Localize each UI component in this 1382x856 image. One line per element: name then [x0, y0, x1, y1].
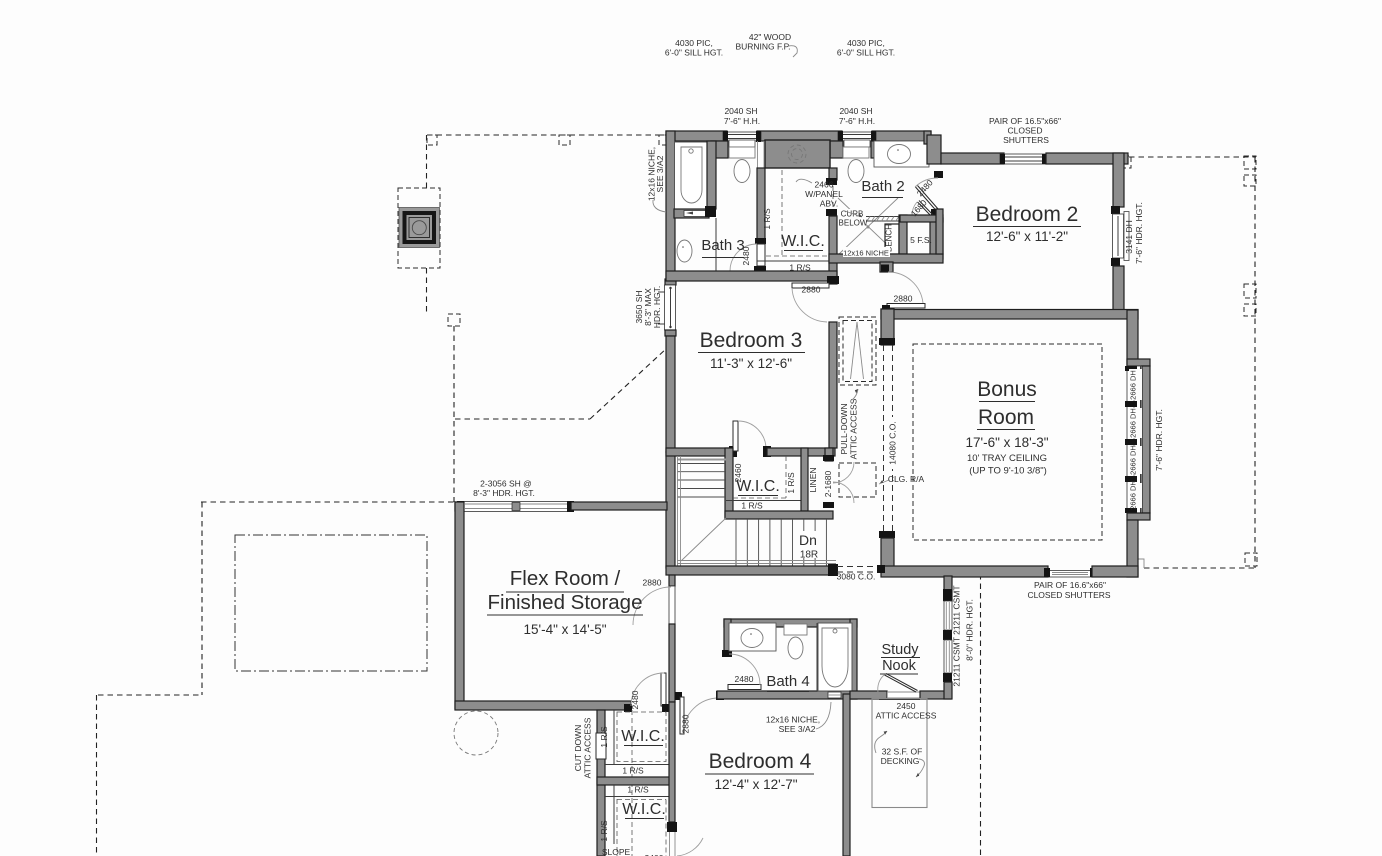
svg-text:2040 SH: 2040 SH — [839, 106, 872, 116]
svg-text:Dn: Dn — [799, 532, 817, 548]
svg-text:SHUTTERS: SHUTTERS — [1003, 135, 1049, 145]
svg-text:PULL-DOWN: PULL-DOWN — [839, 403, 849, 454]
svg-text:CLOSED: CLOSED — [1008, 126, 1043, 136]
svg-text:6'-0" SILL HGT.: 6'-0" SILL HGT. — [837, 48, 895, 58]
svg-text:12x16 NICHE: 12x16 NICHE — [843, 249, 889, 258]
svg-text:2666 DH: 2666 DH — [1129, 408, 1138, 438]
svg-text:7'-6" HDR. HGT.: 7'-6" HDR. HGT. — [1134, 202, 1144, 264]
svg-text:7'-6" HDR. HGT.: 7'-6" HDR. HGT. — [1154, 409, 1164, 471]
svg-text:ATTIC ACCESS: ATTIC ACCESS — [583, 717, 593, 778]
svg-text:8'-0" HDR. HGT.: 8'-0" HDR. HGT. — [965, 599, 975, 661]
svg-text:2880: 2880 — [802, 285, 821, 295]
svg-text:SEE 3/A2: SEE 3/A2 — [655, 155, 665, 192]
svg-text:BELOW: BELOW — [839, 219, 868, 228]
svg-text:W/PANEL: W/PANEL — [805, 189, 843, 199]
svg-text:2880: 2880 — [894, 294, 913, 304]
svg-text:W.I.C.: W.I.C. — [781, 233, 825, 250]
svg-text:Nook: Nook — [882, 658, 917, 674]
svg-text:32 S.F. OF: 32 S.F. OF — [882, 747, 923, 757]
svg-text:CURB: CURB — [841, 210, 864, 219]
svg-text:ABV.: ABV. — [820, 199, 839, 209]
svg-text:1 R/S: 1 R/S — [741, 501, 763, 511]
svg-text:3141 DH: 3141 DH — [1124, 220, 1134, 254]
svg-text:Bonus: Bonus — [977, 378, 1037, 401]
svg-text:Flex Room /: Flex Room / — [510, 567, 621, 590]
svg-text:2-1680: 2-1680 — [823, 470, 833, 497]
svg-text:1 R/S: 1 R/S — [599, 726, 609, 748]
svg-text:2-3056 SH @: 2-3056 SH @ — [480, 479, 532, 489]
svg-text:Bedroom 3: Bedroom 3 — [700, 329, 803, 352]
svg-text:12x16 NICHE,: 12x16 NICHE, — [766, 715, 820, 725]
svg-text:Bath 3: Bath 3 — [701, 237, 744, 254]
svg-text:DECKING: DECKING — [881, 756, 920, 766]
svg-text:Study: Study — [881, 642, 919, 658]
svg-text:Bedroom 2: Bedroom 2 — [976, 203, 1079, 226]
svg-text:14080 C.O.: 14080 C.O. — [888, 421, 898, 464]
svg-text:CLOSED SHUTTERS: CLOSED SHUTTERS — [1027, 590, 1110, 600]
svg-text:1 R/S: 1 R/S — [627, 785, 649, 795]
svg-text:ATTIC ACCESS: ATTIC ACCESS — [849, 398, 859, 459]
svg-text:2666 DH: 2666 DH — [1129, 445, 1138, 475]
svg-text:ATTIC ACCESS: ATTIC ACCESS — [876, 711, 937, 721]
svg-text:7'-6" H.H.: 7'-6" H.H. — [724, 116, 760, 126]
svg-text:SLOPE: SLOPE — [602, 847, 631, 856]
svg-text:2480: 2480 — [735, 674, 754, 684]
svg-text:Bedroom 4: Bedroom 4 — [709, 750, 812, 773]
svg-text:2480: 2480 — [741, 246, 751, 265]
svg-text:1 R/S: 1 R/S — [762, 208, 772, 230]
svg-text:Bath 4: Bath 4 — [766, 673, 809, 690]
svg-text:12'-4" x 12'-7": 12'-4" x 12'-7" — [714, 777, 797, 792]
svg-text:(UP TO 9'-10 3/8"): (UP TO 9'-10 3/8") — [969, 466, 1047, 477]
svg-text:Finished Storage: Finished Storage — [488, 591, 643, 614]
svg-text:2880: 2880 — [643, 578, 662, 588]
svg-text:42" WOOD: 42" WOOD — [749, 32, 791, 42]
svg-text:2040 SH: 2040 SH — [724, 106, 757, 116]
svg-text:W.I.C.: W.I.C. — [736, 478, 780, 495]
svg-text:3080 C.O.: 3080 C.O. — [837, 572, 876, 582]
svg-text:SEE 3/A2: SEE 3/A2 — [779, 724, 816, 734]
svg-text:15'-4" x 14'-5": 15'-4" x 14'-5" — [523, 622, 606, 637]
svg-text:W.I.C.: W.I.C. — [622, 801, 666, 818]
svg-text:LINEN: LINEN — [808, 467, 818, 492]
svg-text:4030 PIC,: 4030 PIC, — [675, 38, 713, 48]
svg-text:HDR. HGT.: HDR. HGT. — [652, 286, 662, 329]
svg-text:12'-6" x 11'-2": 12'-6" x 11'-2" — [986, 229, 1068, 244]
svg-text:2880: 2880 — [681, 714, 691, 733]
svg-text:CUT DOWN: CUT DOWN — [573, 725, 583, 772]
svg-text:Bath 2: Bath 2 — [861, 178, 904, 195]
svg-text:5 F.S.: 5 F.S. — [910, 235, 932, 245]
svg-text:17'-6" x 18'-3": 17'-6" x 18'-3" — [965, 435, 1048, 450]
svg-text:1 R/S: 1 R/S — [789, 263, 811, 273]
svg-text:2480: 2480 — [630, 690, 640, 709]
svg-text:18R: 18R — [800, 550, 818, 561]
svg-text:2450: 2450 — [897, 701, 916, 711]
svg-text:1 R/S: 1 R/S — [622, 766, 644, 776]
svg-text:6'-0" SILL HGT.: 6'-0" SILL HGT. — [665, 48, 723, 58]
svg-text:8'-3" HDR. HGT.: 8'-3" HDR. HGT. — [473, 488, 535, 498]
svg-text:PAIR OF 16.5"x66": PAIR OF 16.5"x66" — [989, 116, 1061, 126]
svg-text:CLG. R/A: CLG. R/A — [888, 474, 925, 484]
svg-text:21211 CSMT 21211 CSMT: 21211 CSMT 21211 CSMT — [952, 585, 962, 686]
svg-text:10' TRAY CEILING: 10' TRAY CEILING — [967, 453, 1047, 464]
svg-text:BURNING F.P.: BURNING F.P. — [735, 42, 790, 52]
svg-text:2466: 2466 — [815, 180, 834, 190]
svg-text:PAIR OF 16.6"x66": PAIR OF 16.6"x66" — [1034, 580, 1106, 590]
svg-text:11'-3" x 12'-6": 11'-3" x 12'-6" — [710, 356, 792, 371]
svg-text:W.I.C.: W.I.C. — [621, 728, 665, 745]
svg-text:Room: Room — [978, 406, 1034, 429]
svg-text:7'-6" H.H.: 7'-6" H.H. — [839, 116, 875, 126]
svg-text:1 R/S: 1 R/S — [599, 820, 609, 842]
svg-text:2666 DH: 2666 DH — [1129, 370, 1138, 400]
svg-text:2666 DH: 2666 DH — [1129, 480, 1138, 510]
svg-text:1 R/S: 1 R/S — [786, 472, 796, 494]
svg-text:4030 PIC,: 4030 PIC, — [847, 38, 885, 48]
